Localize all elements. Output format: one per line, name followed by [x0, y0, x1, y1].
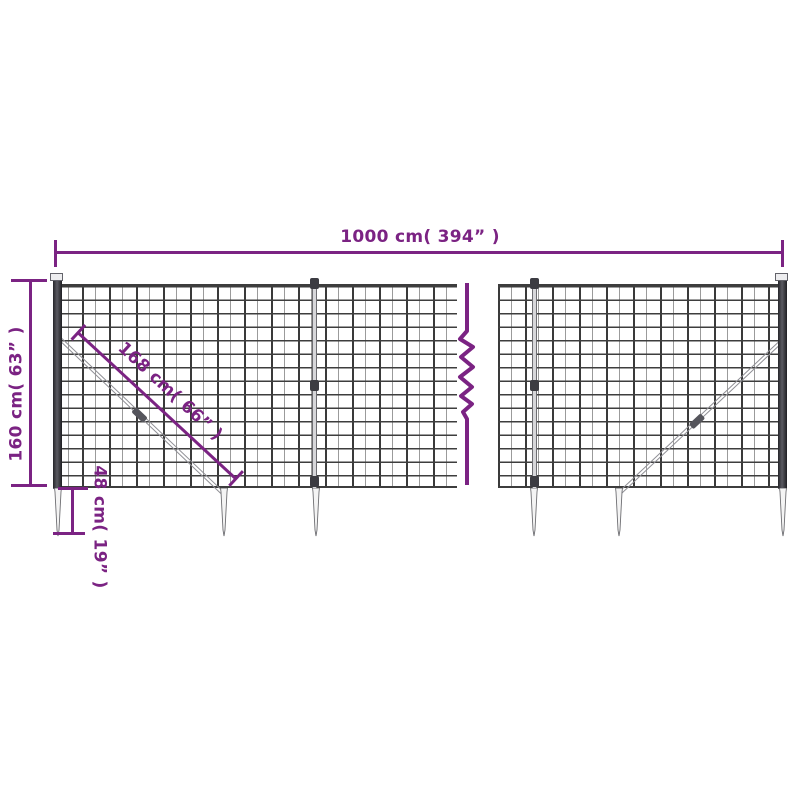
height-dimension-line: [29, 281, 32, 486]
ground-spike-icon: [777, 488, 789, 538]
mesh-panel-right: [498, 284, 787, 488]
post-clamp: [530, 278, 539, 289]
width-dimension-label: 1000 cm( 394” ): [340, 229, 500, 246]
post-clamp: [530, 380, 539, 391]
ground-spike-icon: [613, 488, 625, 538]
post-cap: [775, 273, 788, 281]
ground-spike-icon: [52, 488, 64, 538]
width-dimension-end-tick: [781, 240, 784, 267]
mesh-panel-left: [55, 284, 457, 488]
post-cap: [50, 273, 63, 281]
height-dimension-bottom-tick: [11, 484, 47, 487]
ground-spike-icon: [218, 488, 230, 538]
product-dimension-diagram: 1000 cm( 394” ) 160 cm( 63” ): [0, 0, 800, 800]
spike-depth-bottom-tick: [53, 532, 85, 535]
spike-depth-dimension-label: 48 cm( 19” ): [91, 465, 108, 588]
corner-post-right: [778, 280, 787, 489]
spike-depth-top-tick: [58, 487, 88, 490]
height-dimension-top-tick: [11, 279, 47, 282]
width-dimension-line: [55, 251, 784, 254]
post-clamp: [530, 476, 539, 487]
height-dimension-label: 160 cm( 63” ): [9, 326, 26, 461]
ground-spike-icon: [528, 488, 540, 538]
post-clamp: [310, 278, 319, 289]
ground-spike-icon: [310, 488, 322, 538]
post-clamp: [310, 380, 319, 391]
corner-post-left: [53, 280, 62, 489]
width-dimension-start-tick: [54, 240, 57, 267]
line-post-left: [312, 281, 317, 489]
spike-depth-dimension-line: [71, 488, 74, 535]
post-clamp: [310, 476, 319, 487]
length-break-icon: [455, 283, 479, 485]
line-post-right: [532, 281, 537, 489]
